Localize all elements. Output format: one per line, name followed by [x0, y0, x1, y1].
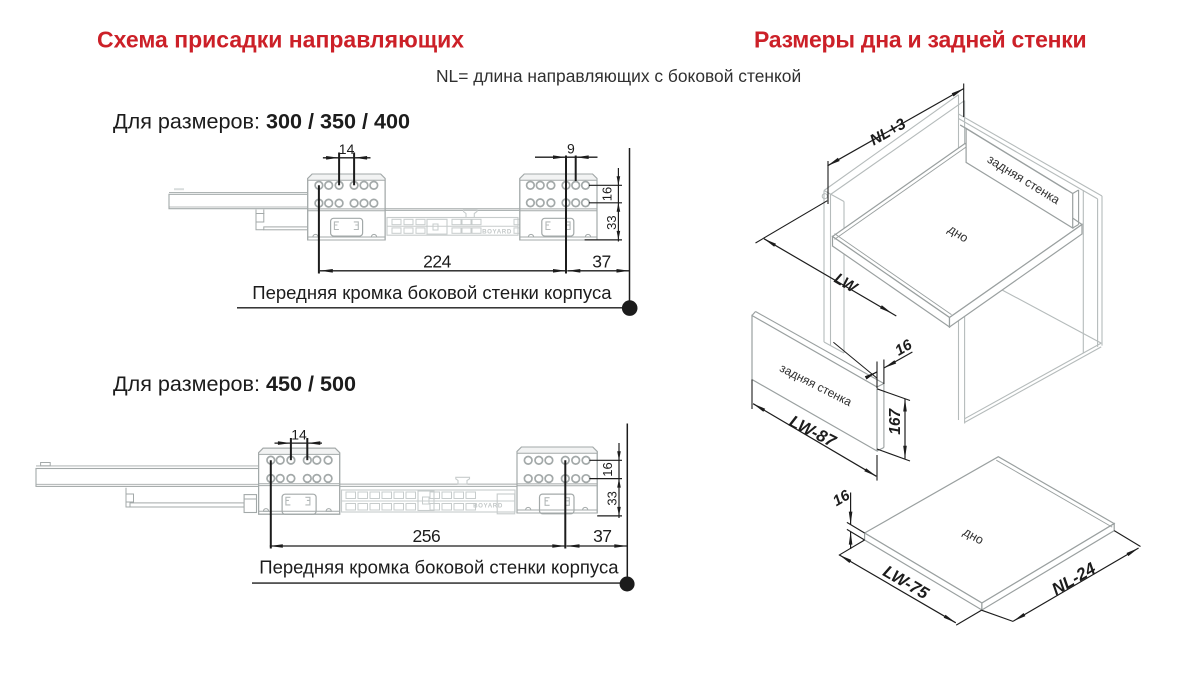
svg-text:256: 256	[413, 526, 441, 546]
svg-text:14: 14	[339, 141, 355, 157]
svg-text:Передняя кромка боковой стенки: Передняя кромка боковой стенки корпуса	[252, 282, 612, 303]
svg-text:37: 37	[592, 252, 610, 272]
svg-text:9: 9	[567, 141, 575, 157]
svg-text:33: 33	[604, 215, 619, 229]
svg-text:Передняя кромка боковой стенки: Передняя кромка боковой стенки корпуса	[259, 557, 619, 578]
svg-text:33: 33	[605, 491, 620, 505]
svg-text:Схема присадки направляющих: Схема присадки направляющих	[97, 27, 464, 53]
svg-text:16: 16	[600, 187, 615, 201]
svg-text:BOYARD: BOYARD	[482, 228, 512, 235]
svg-text:14: 14	[291, 427, 307, 443]
svg-text:16: 16	[600, 462, 615, 476]
svg-text:167: 167	[887, 407, 904, 434]
svg-text:NL= длина направляющих с боков: NL= длина направляющих с боковой стенкой	[436, 66, 801, 86]
svg-text:BOYARD: BOYARD	[473, 503, 503, 510]
svg-text:Для размеров: 300 / 350 / 400: Для размеров: 300 / 350 / 400	[113, 109, 410, 134]
svg-text:37: 37	[593, 526, 611, 546]
svg-text:Размеры дна и задней стенки: Размеры дна и задней стенки	[754, 27, 1086, 53]
svg-text:Для размеров: 450 / 500: Для размеров: 450 / 500	[113, 371, 356, 396]
svg-text:224: 224	[423, 252, 451, 272]
